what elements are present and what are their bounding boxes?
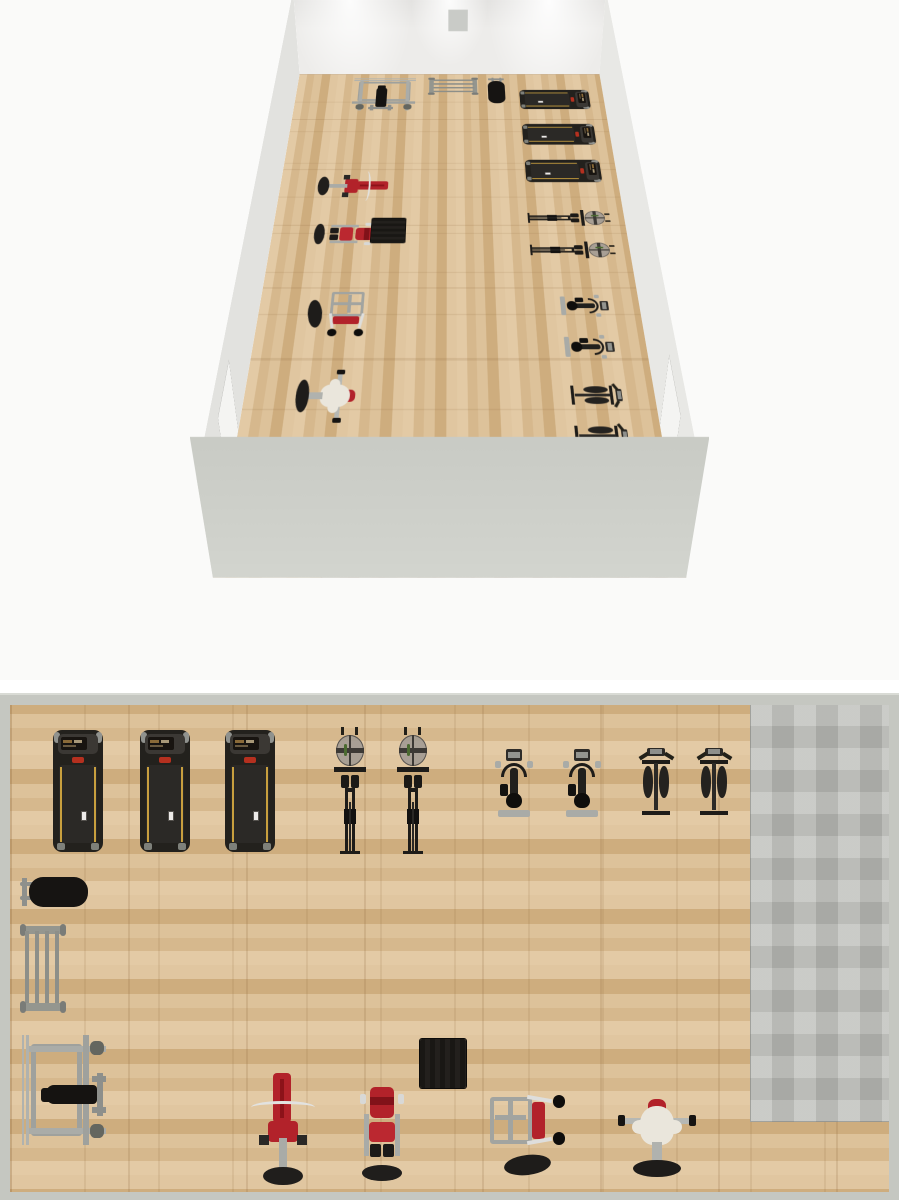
treadmill-part	[144, 843, 152, 849]
equipment-bike-2[interactable]	[563, 748, 601, 818]
treadmill-part	[591, 164, 594, 168]
equipment-barbell-rack[interactable]	[20, 924, 66, 1014]
treadmill-part	[161, 740, 169, 744]
rower-part	[574, 251, 583, 255]
shoulderpress-part	[354, 329, 364, 337]
treadmill-part	[74, 740, 82, 744]
treadmill-part	[60, 767, 62, 843]
elliptical-part	[643, 766, 653, 799]
equipment-shoulder-press[interactable]	[488, 1095, 566, 1179]
treadmill-part	[91, 843, 99, 849]
equipment-pec-deck[interactable]	[618, 1099, 696, 1179]
treadmill-part	[232, 767, 234, 843]
pecdeck-part	[666, 1120, 682, 1134]
treadmill-part	[266, 767, 268, 843]
barbellrack-part	[432, 87, 475, 89]
barbellrack-part	[432, 79, 474, 81]
equipment-mat-stack[interactable]	[420, 1039, 466, 1088]
equipment-treadmill-2[interactable]	[140, 730, 190, 852]
equipment-flat-bench[interactable]	[20, 874, 88, 910]
bike-part	[574, 793, 589, 808]
powerrack-part	[355, 104, 364, 109]
powerrack-part	[92, 1076, 106, 1082]
barbellrack-part	[431, 91, 474, 93]
treadmill-part	[523, 126, 527, 129]
view-3d-perspective	[0, 0, 899, 680]
legext-part	[364, 228, 370, 241]
rower-part	[340, 851, 360, 855]
bike-part	[596, 313, 601, 317]
equipment-rower-1[interactable]	[334, 727, 366, 857]
rower-part	[596, 247, 604, 249]
rower-part	[341, 727, 344, 735]
floor-plan-clip	[10, 705, 889, 1192]
powerrack-part	[22, 1035, 25, 1145]
legext-part	[339, 227, 353, 240]
treadmill-part	[244, 757, 256, 763]
elliptical-part	[700, 811, 727, 815]
elliptical-part	[717, 766, 727, 799]
treadmill-part	[581, 94, 584, 97]
legext-part	[370, 1097, 395, 1105]
treadmill-part	[529, 141, 574, 142]
rower-part	[610, 253, 615, 255]
equipment-barbell-rack[interactable]	[427, 78, 478, 95]
rower-part	[344, 744, 348, 756]
treadmill-part	[150, 745, 163, 747]
treadmill-part	[537, 101, 544, 103]
elliptical-part	[708, 749, 721, 753]
rower-part	[418, 727, 421, 735]
equipment-preacher-curl[interactable]	[315, 170, 390, 202]
equipment-bike-1[interactable]	[495, 748, 533, 818]
rower-part	[412, 802, 415, 854]
rower-part	[530, 249, 565, 250]
elliptical-part	[642, 811, 669, 815]
powerrack-part	[90, 1041, 103, 1055]
barbellrack-part	[45, 931, 49, 1007]
treadmill-part	[530, 162, 580, 179]
mat-part	[420, 1039, 466, 1088]
treadmill-part	[592, 169, 595, 173]
treadmill-part	[63, 745, 76, 747]
treadmill-part	[235, 740, 244, 744]
powerrack-part	[388, 105, 392, 111]
bike-part	[595, 761, 601, 768]
powerrack-part	[92, 1107, 106, 1113]
rower-part	[404, 727, 407, 735]
elliptical-part	[650, 749, 663, 753]
treadmill-part	[57, 843, 65, 849]
barbellrack-part	[432, 83, 474, 85]
equipment-treadmill-3[interactable]	[525, 160, 603, 182]
rower-part	[341, 775, 349, 788]
legext-part	[360, 1094, 366, 1104]
wall-back	[293, 0, 606, 74]
equipment-power-rack[interactable]	[348, 78, 419, 111]
equipment-treadmill-2[interactable]	[522, 124, 597, 145]
rower-part	[605, 220, 610, 222]
barbellrack-part	[428, 93, 435, 95]
legext-part	[398, 1094, 404, 1104]
treadmill-part	[570, 97, 574, 102]
rower-part	[591, 215, 599, 217]
treadmill-part	[63, 740, 72, 744]
bike-part	[498, 810, 530, 817]
treadmill-part	[531, 163, 577, 164]
elliptical-part	[654, 763, 659, 810]
rower-part	[571, 218, 580, 222]
treadmill-part	[229, 843, 237, 849]
rower-part	[609, 245, 614, 247]
barbellrack-part	[472, 93, 479, 95]
treadmill-part	[181, 767, 183, 843]
treadmill-part	[528, 127, 573, 128]
treadmill-part	[522, 104, 526, 107]
equipment-mat-stack[interactable]	[370, 218, 405, 243]
treadmill-part	[524, 140, 528, 143]
preacher-part	[263, 1167, 302, 1185]
planner-canvas	[0, 0, 899, 1200]
shoulderpress-part	[532, 1102, 544, 1139]
equipment-treadmill-3[interactable]	[225, 730, 275, 852]
preacher-part	[344, 175, 351, 179]
treadmill-part	[527, 177, 531, 181]
treadmill-part	[586, 128, 589, 132]
pecdeck-part	[618, 1115, 625, 1126]
equipment-rower-2[interactable]	[397, 727, 429, 857]
equipment-flat-bench[interactable]	[486, 78, 508, 104]
wall-front	[190, 437, 710, 578]
bike-part	[500, 784, 508, 796]
equipment-elliptical-2[interactable]	[695, 748, 733, 822]
pecdeck-part	[632, 1120, 648, 1134]
powerrack-part	[90, 1124, 103, 1138]
elliptical-part	[659, 766, 669, 799]
treadmill-part	[580, 168, 584, 173]
powerrack-part	[403, 104, 412, 109]
legext-part	[383, 1144, 394, 1157]
equipment-preacher-curl[interactable]	[248, 1072, 318, 1186]
treadmill-part	[235, 745, 248, 747]
rower-part	[527, 213, 530, 223]
rower-part	[411, 788, 415, 792]
treadmill-part	[168, 811, 174, 822]
rower-part	[570, 213, 579, 217]
flatbench-part	[29, 877, 88, 907]
preacher-part	[251, 1101, 315, 1115]
barbellrack-part	[428, 78, 435, 80]
equipment-leg-extension[interactable]	[360, 1085, 404, 1183]
treadmill-part	[582, 98, 585, 101]
treadmill-part	[525, 93, 568, 94]
room-walls-2d	[0, 693, 899, 1200]
treadmill-part	[146, 765, 184, 843]
equipment-treadmill-1[interactable]	[53, 730, 103, 852]
bike-part	[599, 335, 605, 339]
rower-part	[404, 775, 412, 788]
shoulderpress-part	[553, 1132, 565, 1145]
pecdeck-part	[329, 379, 341, 389]
wall-panel	[449, 10, 469, 32]
treadmill-part	[587, 133, 590, 136]
barbellrack-part	[60, 924, 66, 936]
tile-floor-area	[750, 705, 889, 1122]
bike-part	[495, 761, 501, 768]
rower-part	[334, 767, 366, 772]
shoulderpress-part	[503, 1153, 552, 1179]
treadmill-part	[524, 92, 570, 107]
view-2d-floor-plan	[0, 680, 899, 1200]
rower-part	[604, 213, 609, 215]
treadmill-part	[231, 765, 269, 843]
treadmill-part	[541, 135, 548, 138]
rower-part	[574, 245, 583, 249]
legext-part	[330, 241, 357, 243]
rower-part	[572, 249, 575, 251]
barbellrack-part	[55, 931, 59, 1007]
pecdeck-part	[689, 1115, 696, 1126]
elliptical-part	[614, 400, 620, 407]
rower-part	[414, 775, 422, 788]
rower-part	[348, 788, 352, 792]
treadmill-part	[253, 811, 259, 822]
powerrack-part	[375, 87, 387, 107]
legext-part	[329, 235, 338, 241]
treadmill-part	[526, 162, 530, 166]
preacher-part	[317, 177, 331, 195]
treadmill-part	[147, 767, 149, 843]
treadmill-part	[150, 740, 159, 744]
bike-part	[568, 784, 576, 796]
rower-part	[528, 217, 562, 218]
rower-part	[403, 851, 423, 855]
bike-part	[566, 810, 598, 817]
room-2d	[10, 705, 889, 1192]
rower-part	[351, 775, 359, 788]
equipment-leg-extension[interactable]	[311, 223, 378, 245]
bike-part	[508, 752, 520, 758]
treadmill-part	[521, 91, 525, 94]
bike-part	[506, 793, 521, 808]
elliptical-part	[712, 763, 717, 810]
treadmill-part	[72, 757, 84, 763]
barbellrack-part	[35, 931, 39, 1007]
powerrack-part	[46, 1085, 97, 1104]
elliptical-part	[701, 766, 711, 799]
treadmill-part	[81, 811, 87, 822]
shoulderpress-part	[553, 1095, 565, 1108]
rower-part	[355, 727, 358, 735]
preacher-part	[259, 1135, 269, 1145]
pecdeck-part	[633, 1160, 681, 1178]
rower-part	[349, 802, 352, 854]
legext-part	[330, 228, 339, 234]
powerrack-part	[370, 105, 374, 111]
rower-part	[568, 217, 571, 219]
shoulderpress-part	[327, 329, 337, 337]
barbellrack-part	[20, 1001, 26, 1013]
equipment-treadmill-1[interactable]	[519, 90, 591, 109]
rower-part	[397, 767, 429, 772]
treadmill-part	[544, 172, 551, 175]
shoulderpress-part	[508, 1100, 513, 1140]
barbellrack-part	[60, 1001, 66, 1013]
treadmill-part	[59, 765, 97, 843]
legext-part	[362, 1165, 402, 1181]
room-3d	[213, 74, 686, 578]
rower-part	[336, 748, 364, 753]
treadmill-part	[263, 843, 271, 849]
treadmill-part	[527, 126, 575, 142]
treadmill-part	[178, 843, 186, 849]
rower-part	[399, 748, 427, 753]
treadmill-part	[246, 740, 254, 744]
perspective-stretch-wrapper	[0, 0, 899, 680]
shoulderpress-part	[329, 313, 334, 328]
bike-part	[527, 761, 533, 768]
legext-part	[395, 1114, 399, 1155]
equipment-elliptical-1[interactable]	[637, 748, 675, 822]
treadmill-part	[94, 767, 96, 843]
treadmill-part	[532, 178, 579, 179]
equipment-rower-2[interactable]	[528, 242, 617, 259]
legext-part	[369, 1122, 395, 1142]
mat-part	[370, 218, 405, 243]
preacher-part	[297, 1135, 307, 1145]
bike-part	[576, 752, 588, 758]
treadmill-part	[159, 757, 171, 763]
equipment-power-rack[interactable]	[20, 1030, 108, 1150]
flatbench-part	[488, 81, 506, 103]
preacher-part	[342, 192, 349, 197]
rower-part	[407, 744, 411, 756]
treadmill-part	[575, 132, 579, 137]
legext-part	[370, 1144, 381, 1157]
bike-part	[563, 761, 569, 768]
barbellrack-part	[25, 931, 29, 1007]
treadmill-part	[526, 106, 570, 107]
